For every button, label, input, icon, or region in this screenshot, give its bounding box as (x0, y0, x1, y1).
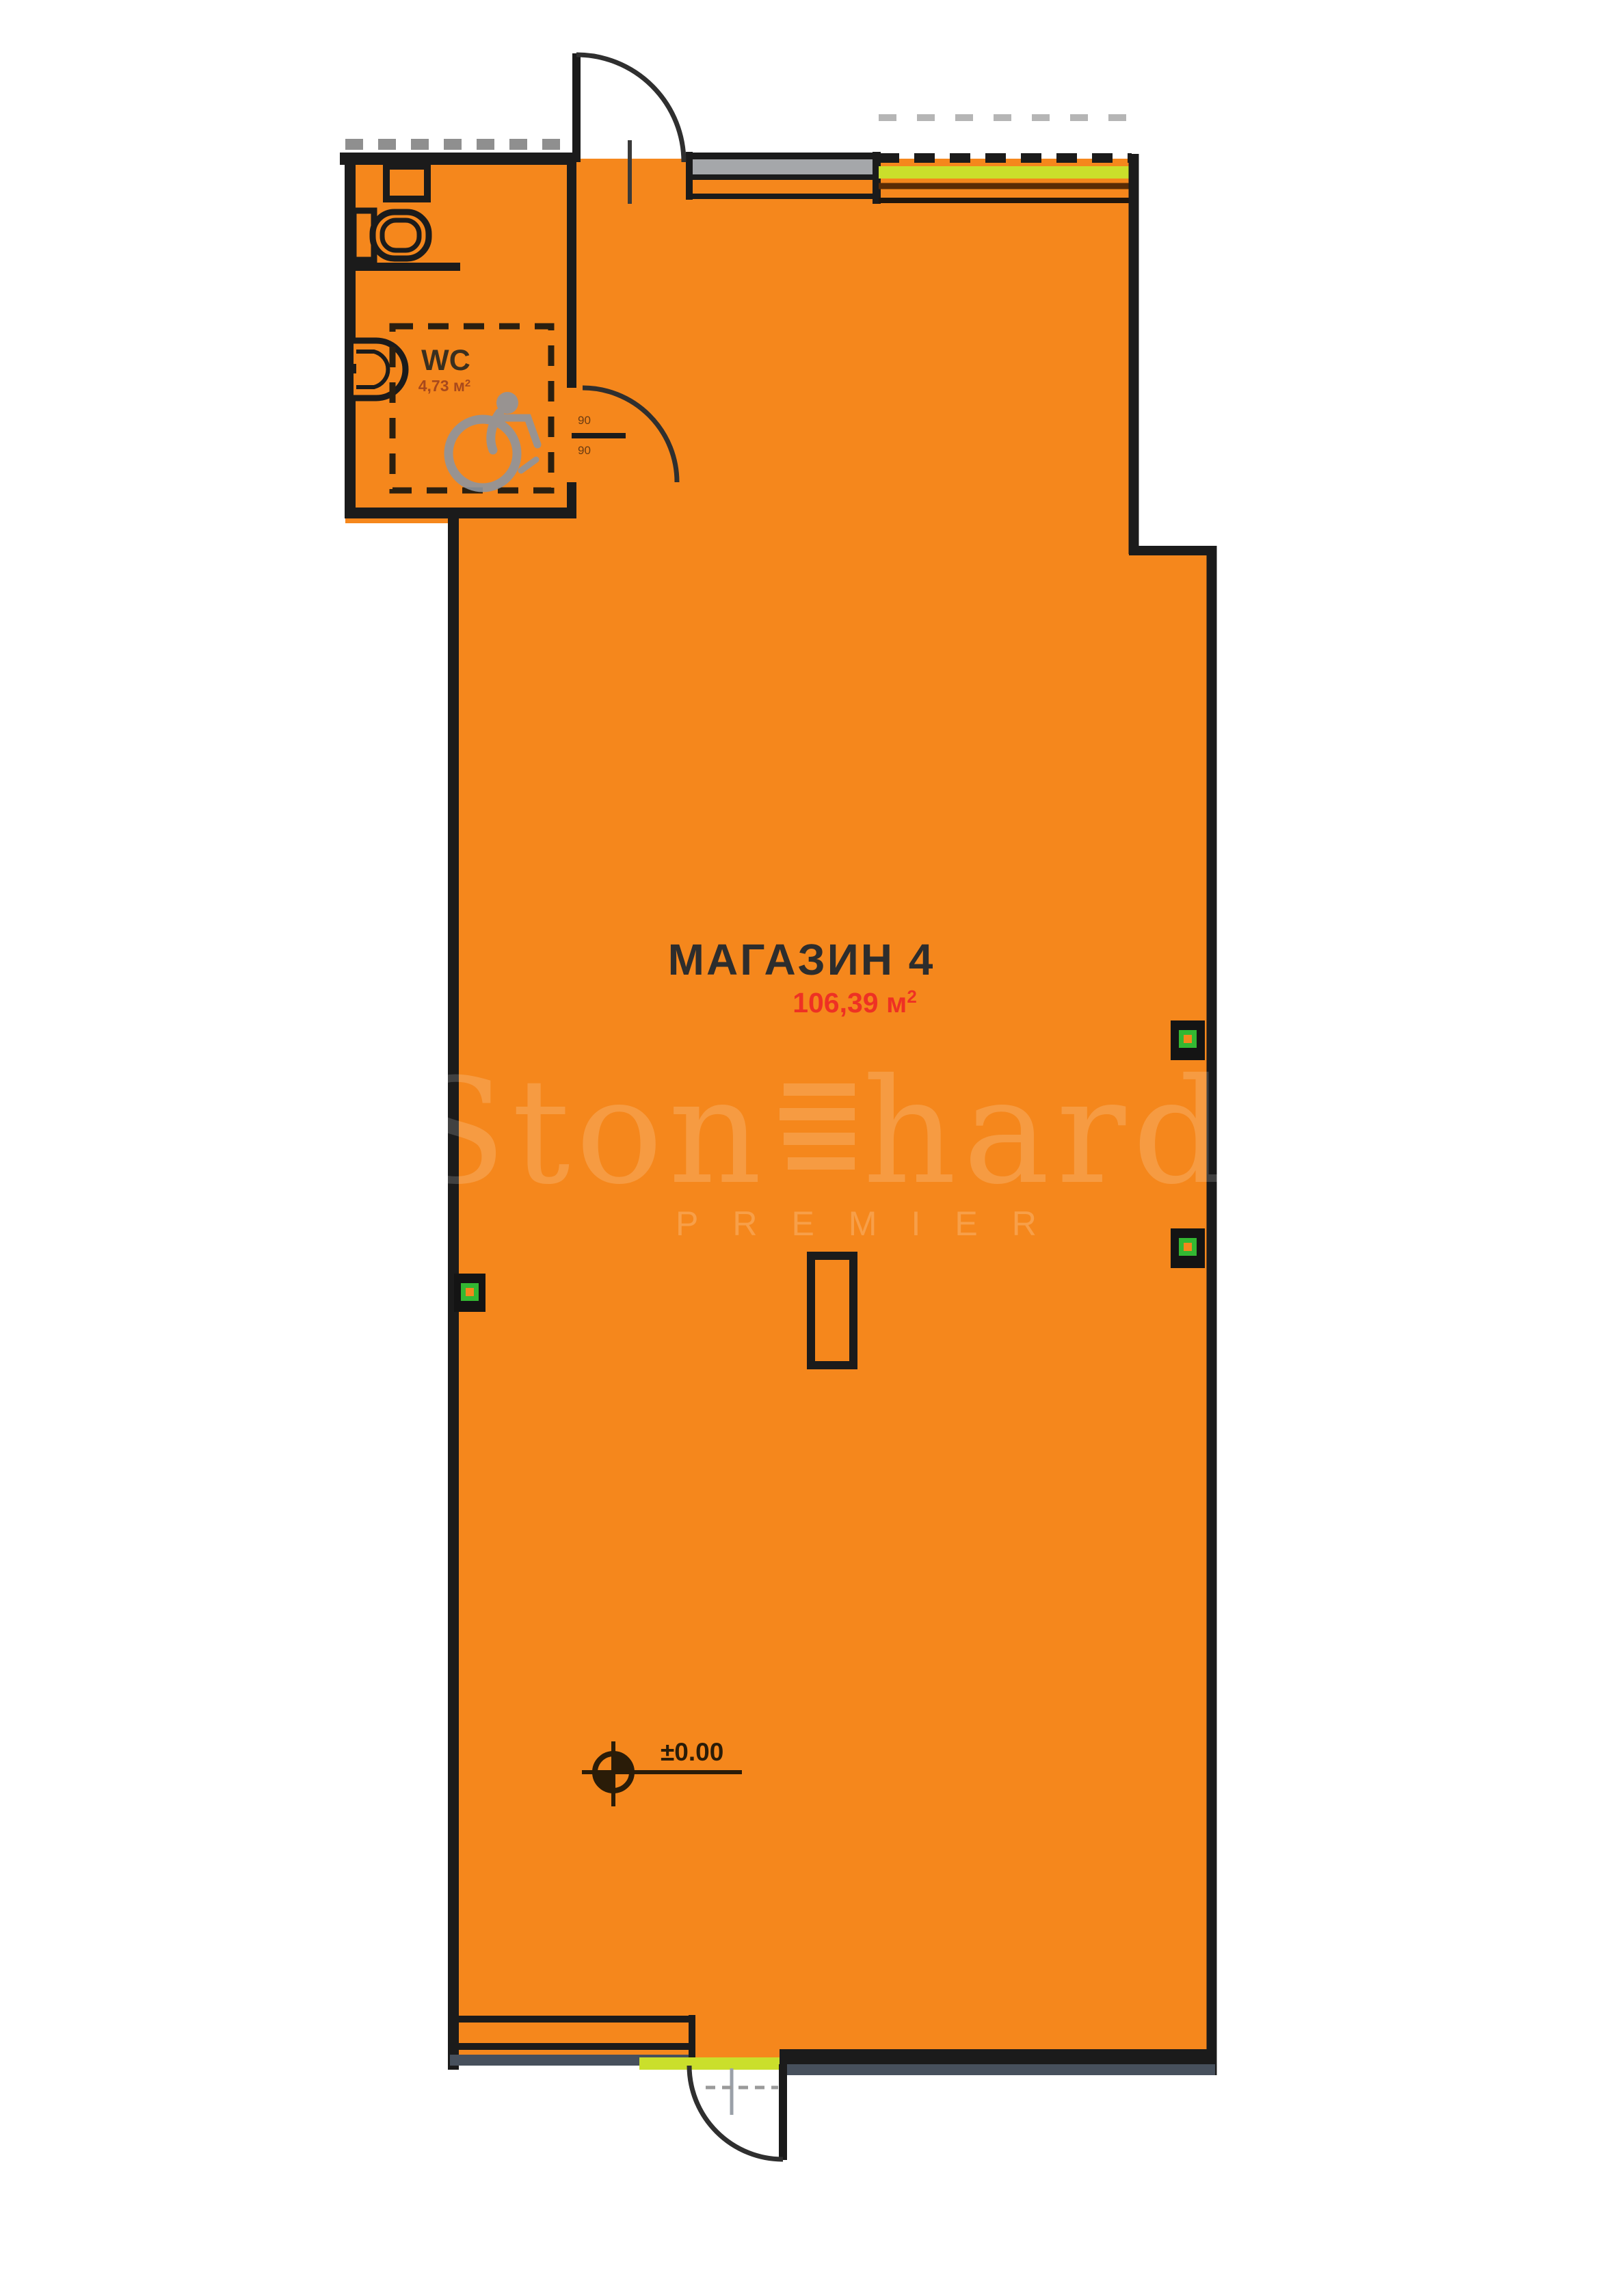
logo-bar (788, 1157, 855, 1170)
sink-tap (345, 364, 356, 373)
unit-area-sup: 2 (907, 986, 916, 1007)
plinth-bottom-right (780, 2064, 1215, 2075)
watermark-tagline: PREMIER (676, 1204, 1071, 1243)
toilet-icon (354, 211, 429, 260)
lime-accent-strip (879, 166, 1132, 179)
watermark-brand-left: Ston (407, 1047, 767, 1216)
outlet-core (1184, 1035, 1192, 1043)
wc-name-label: WC (421, 344, 470, 377)
outlet-core (1184, 1243, 1192, 1251)
outlet-core (466, 1288, 474, 1296)
wc-area-label: 4,73 м2 (418, 377, 471, 395)
wall-bottom-right (780, 2049, 1215, 2064)
outlet-icon (454, 1274, 485, 1312)
door-dimension: 90 (578, 444, 591, 457)
unit-name-label: МАГАЗИН 4 (668, 935, 935, 984)
floor-plan-page: 90 90 (0, 0, 1624, 2279)
lime-threshold (639, 2057, 780, 2070)
wc-area-sup: 2 (465, 378, 470, 389)
door-dimension: 90 (578, 414, 591, 427)
entrance-door-bottom (689, 2064, 783, 2160)
wc-area-value: 4,73 м (418, 377, 465, 395)
watermark-brand-right: hard (863, 1047, 1232, 1216)
sink-icon (345, 341, 405, 398)
logo-bar (784, 1083, 855, 1096)
window-glass-band (689, 159, 879, 174)
logo-bar (784, 1133, 855, 1145)
unit-area-value: 106,39 м (793, 987, 907, 1018)
storefront-window-top (689, 152, 879, 204)
elevation-label: ±0.00 (661, 1738, 723, 1766)
unit-area-label: 106,39 м2 (793, 986, 917, 1018)
outlet-icon (1171, 1228, 1205, 1268)
logo-bar (780, 1108, 855, 1120)
floor-plan-canvas: 90 90 (0, 0, 1624, 2279)
sink-basin (354, 341, 405, 398)
door-swing-arc (689, 2066, 783, 2159)
